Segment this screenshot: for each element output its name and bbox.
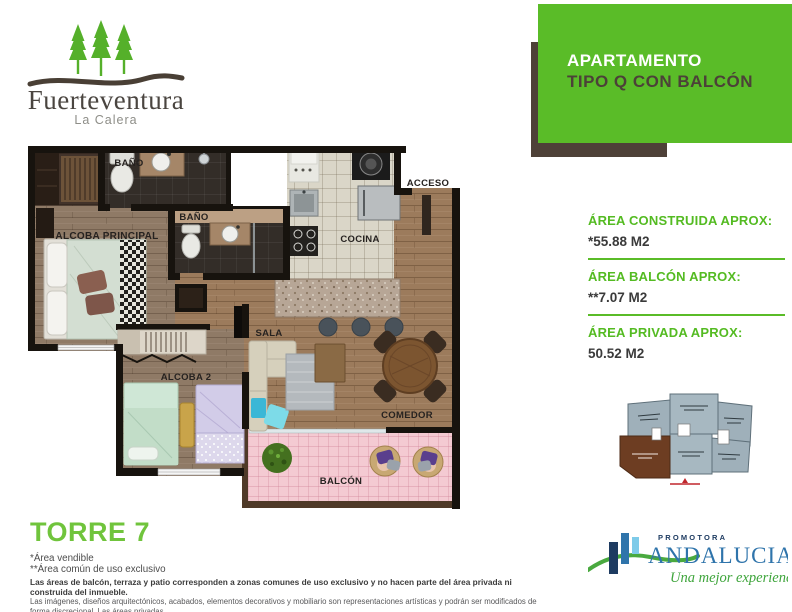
- outside-area: [116, 476, 244, 518]
- area-construida-value: *55.88 M2: [588, 234, 785, 249]
- banner-title-line2: TIPO Q CON BALCÓN: [567, 71, 753, 92]
- area-block: ÁREA BALCÓN APROX: **7.07 M2: [588, 269, 785, 305]
- brand-location: La Calera: [74, 113, 137, 127]
- bedroom2-rug: [180, 403, 194, 447]
- highlighted-unit: [620, 436, 670, 478]
- key-plan-compass-mark: [670, 478, 700, 484]
- room-label-bano1: BAÑO: [114, 158, 143, 169]
- room-label-comedor: COMEDOR: [381, 410, 433, 421]
- balcony-plant: [262, 443, 292, 473]
- divider: [588, 314, 785, 316]
- footnote-2: **Área común de uso exclusivo: [30, 564, 555, 575]
- bar-stool: [352, 318, 370, 336]
- areas-panel: ÁREA CONSTRUIDA APROX: *55.88 M2 ÁREA BA…: [588, 213, 785, 361]
- room-label-cocina: COCINA: [340, 234, 379, 245]
- promoter-top-label: PROMOTORA: [658, 533, 727, 542]
- cooktop: [290, 226, 318, 256]
- sliding-glass-door: [249, 429, 386, 433]
- pine-trees-icon: [69, 20, 133, 76]
- room-label-alcoba-principal: ALCOBA PRINCIPAL: [55, 231, 158, 242]
- disclaimer-small-1: Las imágenes, diseños arquitectónicos, a…: [30, 597, 555, 612]
- area-balcon-label: ÁREA BALCÓN APROX:: [588, 269, 785, 284]
- room-label-balcon: BALCÓN: [320, 475, 362, 487]
- divider: [588, 258, 785, 260]
- brochure-page: Fuerteventura La Calera APARTAMENTO TIPO…: [0, 0, 792, 612]
- outside-area: [28, 351, 116, 518]
- coffee-table: [315, 344, 345, 382]
- linen-cabinet: [175, 284, 207, 312]
- balcony-chair: [370, 446, 401, 476]
- bar-counter: [275, 279, 400, 317]
- bedroom2-bed-mint: [124, 383, 178, 465]
- area-block: ÁREA CONSTRUIDA APROX: *55.88 M2: [588, 213, 785, 249]
- banner-title-line1: APARTAMENTO: [567, 50, 753, 71]
- area-balcon-value: **7.07 M2: [588, 290, 785, 305]
- room-label-acceso: ACCESO: [407, 178, 449, 189]
- area-block: ÁREA PRIVADA APROX: 50.52 M2: [588, 325, 785, 361]
- room-label-sala: SALA: [255, 328, 282, 339]
- footnote-1: *Área vendible: [30, 553, 555, 564]
- promotora-andalucia-logo: PROMOTORA ANDALUCIA Una mejor experienci…: [588, 520, 788, 600]
- disclaimer-bold: Las áreas de balcón, terraza y patio cor…: [30, 577, 555, 597]
- kitchen-sink: [290, 190, 318, 216]
- fuerteventura-logo: Fuerteventura La Calera: [12, 8, 202, 128]
- room-label-bano2: BAÑO: [179, 212, 208, 223]
- footnotes: *Área vendible **Área común de uso exclu…: [30, 553, 555, 612]
- bedroom2-bed-lavender: [196, 385, 244, 463]
- fridge: [358, 186, 400, 220]
- area-construida-label: ÁREA CONSTRUIDA APROX:: [588, 213, 785, 228]
- room-label-alcoba2: ALCOBA 2: [161, 372, 212, 383]
- area-privada-label: ÁREA PRIVADA APROX:: [588, 325, 785, 340]
- dining-set: [372, 329, 449, 405]
- brand-name: Fuerteventura: [28, 85, 184, 115]
- tower-key-plan: [612, 386, 766, 486]
- apartment-type-banner: APARTAMENTO TIPO Q CON BALCÓN: [538, 4, 792, 143]
- ground-swoosh-icon: [30, 76, 182, 84]
- tower-title: TORRE 7: [30, 517, 150, 548]
- bars-icon: [609, 533, 639, 574]
- promoter-tagline: Una mejor experiencia!: [670, 570, 788, 586]
- area-privada-value: 50.52 M2: [588, 346, 785, 361]
- dresser: [36, 208, 54, 238]
- balcony-chair: [413, 447, 443, 477]
- floor-plan: BAÑO BAÑO ACCESO COCINA ALCOBA PRINCIPAL…: [28, 146, 468, 518]
- promoter-name: ANDALUCIA: [648, 543, 788, 568]
- master-closet: [35, 153, 103, 205]
- bar-stool: [319, 318, 337, 336]
- entry-door: [422, 195, 431, 235]
- light-well: [230, 148, 290, 208]
